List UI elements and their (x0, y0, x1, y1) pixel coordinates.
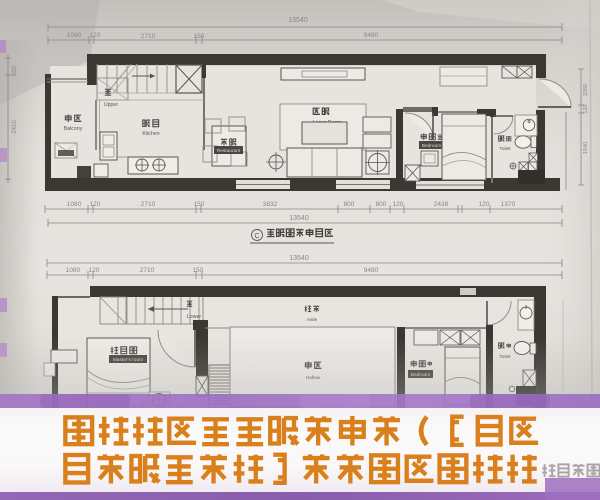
svg-text:13540: 13540 (288, 17, 308, 24)
svg-text:2438: 2438 (434, 201, 449, 208)
svg-text:2710: 2710 (141, 201, 156, 208)
svg-text:1080: 1080 (66, 267, 81, 274)
svg-text:1050: 1050 (583, 84, 589, 96)
svg-text:Kitchen: Kitchen (142, 131, 159, 137)
svg-text:Aisle: Aisle (307, 317, 318, 323)
svg-text:Restaurant: Restaurant (217, 148, 241, 154)
svg-text:1080: 1080 (67, 201, 82, 208)
svg-text:600: 600 (12, 65, 18, 76)
svg-text:1080: 1080 (67, 32, 82, 39)
svg-text:Bedroom: Bedroom (422, 143, 441, 149)
svg-text:13540: 13540 (289, 215, 309, 222)
svg-text:120: 120 (393, 201, 404, 208)
svg-text:150: 150 (194, 33, 205, 40)
svg-text:Upper: Upper (104, 102, 118, 108)
svg-text:Lower: Lower (187, 314, 201, 320)
svg-text:2710: 2710 (141, 33, 156, 40)
svg-text:800: 800 (344, 201, 355, 208)
svg-text:9480: 9480 (364, 267, 379, 274)
svg-text:1370: 1370 (501, 201, 516, 208)
svg-text:120: 120 (90, 201, 101, 208)
svg-text:C: C (254, 233, 259, 240)
svg-text:120: 120 (90, 32, 101, 39)
svg-text:3832: 3832 (263, 201, 278, 208)
svg-text:150: 150 (194, 201, 205, 208)
svg-text:2410: 2410 (12, 120, 18, 134)
svg-text:120: 120 (583, 104, 589, 113)
svg-text:Balcony: Balcony (64, 126, 83, 132)
svg-text:2710: 2710 (140, 267, 155, 274)
svg-text:800: 800 (376, 201, 387, 208)
svg-text:13540: 13540 (289, 255, 309, 262)
svg-text:150: 150 (193, 267, 204, 274)
svg-text:Toilet: Toilet (499, 146, 511, 152)
svg-text:120: 120 (479, 201, 490, 208)
svg-text:120: 120 (89, 267, 100, 274)
svg-text:1540: 1540 (583, 142, 589, 154)
svg-text:9480: 9480 (364, 32, 379, 39)
